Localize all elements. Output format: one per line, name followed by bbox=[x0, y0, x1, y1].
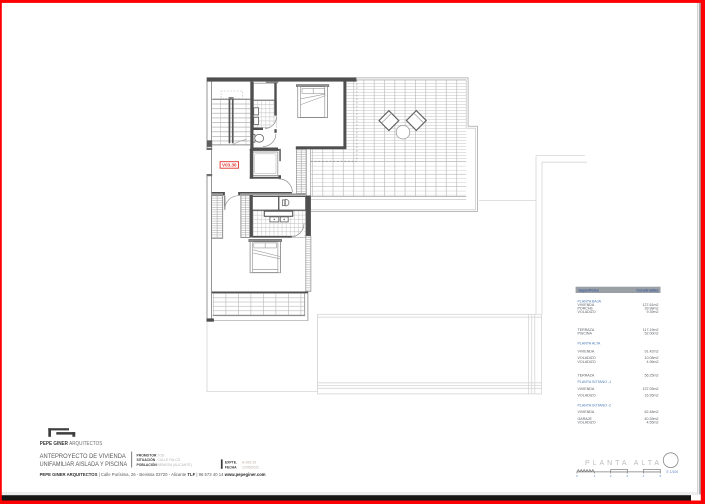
svg-text:PROMOTOR: PROMOTOR bbox=[137, 453, 157, 457]
svg-text:E 1/100: E 1/100 bbox=[667, 470, 679, 474]
svg-text:UNIFAMILIAR AISLADA Y PISCINA: UNIFAMILIAR AISLADA Y PISCINA bbox=[40, 461, 128, 468]
svg-text:ANTEPROYECTO DE VIVIENDA: ANTEPROYECTO DE VIVIENDA bbox=[40, 453, 127, 460]
svg-text:137.05m2: 137.05m2 bbox=[643, 387, 659, 391]
svg-text:4.96m2: 4.96m2 bbox=[647, 360, 659, 364]
svg-text:PEPE GINER ARQUITECTOS | Calle: PEPE GINER ARQUITECTOS | Calle Purísima,… bbox=[40, 472, 266, 477]
svg-text:16.95m2: 16.95m2 bbox=[645, 394, 659, 398]
svg-text:VOLADIZO: VOLADIZO bbox=[578, 394, 596, 398]
svg-text:FECHA: FECHA bbox=[225, 465, 237, 469]
svg-text:4.55m2: 4.55m2 bbox=[647, 420, 659, 424]
svg-text:VOLADIZO: VOLADIZO bbox=[578, 360, 596, 364]
svg-text:56.25m2: 56.25m2 bbox=[645, 373, 659, 377]
svg-text:A-105-19: A-105-19 bbox=[242, 461, 256, 465]
svg-text:PLANTA SOTANO -1: PLANTA SOTANO -1 bbox=[578, 380, 612, 384]
svg-text:VOLADIZO: VOLADIZO bbox=[578, 310, 596, 314]
svg-text:SITUACIÓN: SITUACIÓN bbox=[137, 457, 156, 462]
svg-text:PISCINA: PISCINA bbox=[578, 332, 593, 336]
svg-text:VIVIENDA: VIVIENDA bbox=[578, 350, 595, 354]
svg-text:POBLACIÓN: POBLACIÓN bbox=[137, 462, 158, 467]
svg-text:PLANTA SOTANO -2: PLANTA SOTANO -2 bbox=[578, 403, 612, 407]
svg-text:Construidas: Construidas bbox=[636, 288, 658, 292]
svg-text:PLANTA ALTA: PLANTA ALTA bbox=[578, 342, 601, 346]
svg-text:BENISSA (ALICANTE): BENISSA (ALICANTE) bbox=[158, 463, 192, 467]
svg-text:52.00m2: 52.00m2 bbox=[645, 332, 659, 336]
svg-text:62.48m2: 62.48m2 bbox=[645, 410, 659, 414]
svg-text:12/05/2022: 12/05/2022 bbox=[242, 465, 259, 469]
svg-text:V03.30: V03.30 bbox=[222, 163, 237, 168]
svg-text:VOLADIZO: VOLADIZO bbox=[578, 420, 596, 424]
svg-text:EXPTE.: EXPTE. bbox=[225, 461, 237, 465]
svg-text:PEPE GINER ARQUITECTOS: PEPE GINER ARQUITECTOS bbox=[40, 441, 103, 447]
svg-text:JOD: JOD bbox=[158, 453, 165, 457]
svg-text:CALLE FALCÓ: CALLE FALCÓ bbox=[158, 457, 181, 462]
svg-text:9.39m2: 9.39m2 bbox=[647, 310, 659, 314]
svg-text:VIVIENDA: VIVIENDA bbox=[578, 410, 595, 414]
svg-text:PLANTA ALTA: PLANTA ALTA bbox=[585, 460, 662, 467]
svg-text:TERRAZA: TERRAZA bbox=[578, 373, 595, 377]
svg-text:VIVIENDA: VIVIENDA bbox=[578, 387, 595, 391]
svg-text:Superficies: Superficies bbox=[578, 288, 598, 292]
svg-text:91.42m2: 91.42m2 bbox=[645, 350, 659, 354]
